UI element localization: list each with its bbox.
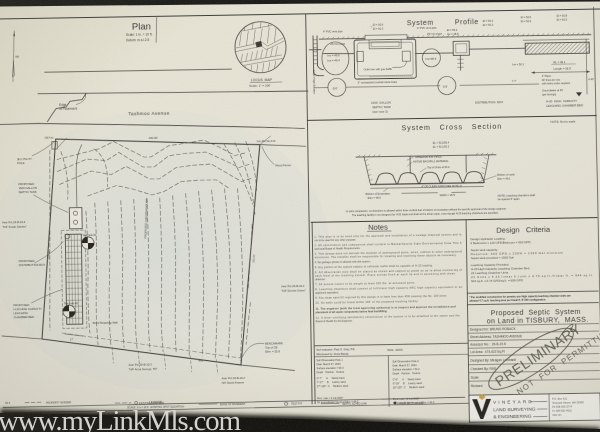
svg-text:www.myLinkMls.com: www.myLinkMls.com bbox=[0, 405, 241, 432]
